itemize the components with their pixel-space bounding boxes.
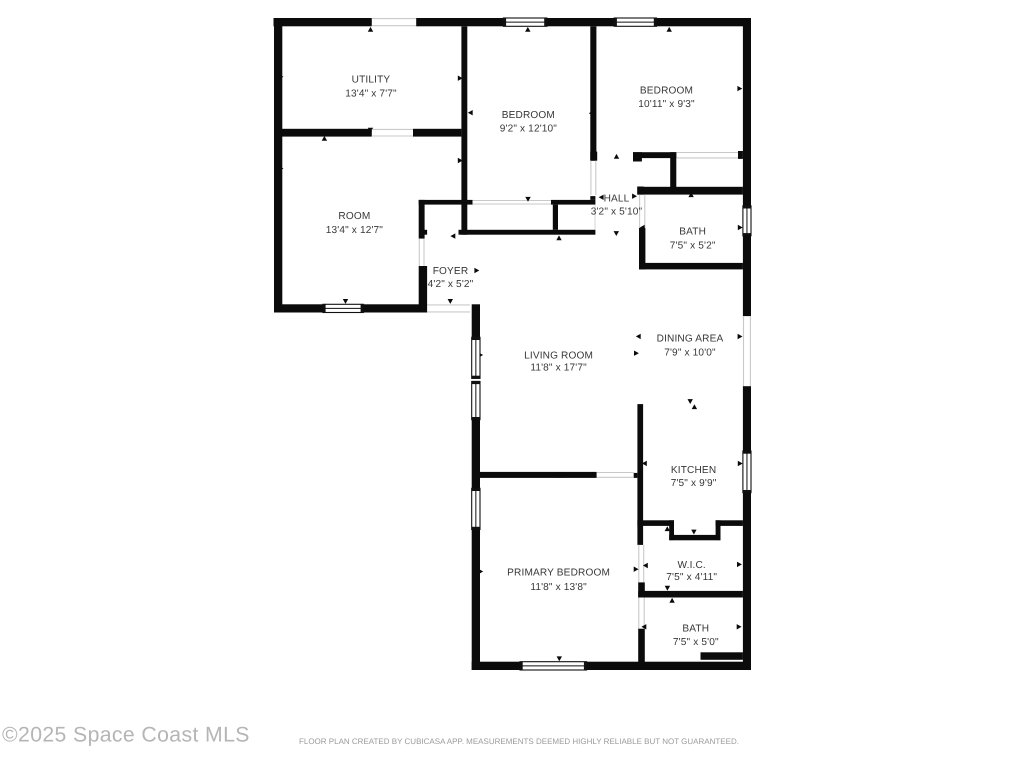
svg-text:7'5" x 5'2": 7'5" x 5'2" [670,241,716,252]
svg-text:4'2" x 5'2": 4'2" x 5'2" [428,279,474,290]
svg-text:BEDROOM: BEDROOM [502,110,555,121]
svg-text:DINING AREA: DINING AREA [657,334,724,345]
svg-text:BEDROOM: BEDROOM [640,86,693,97]
svg-text:7'5" x 5'0": 7'5" x 5'0" [673,637,719,648]
svg-text:LIVING ROOM: LIVING ROOM [524,351,593,362]
svg-text:7'9" x 10'0": 7'9" x 10'0" [664,347,716,358]
svg-text:FOYER: FOYER [433,266,469,277]
svg-text:FLOOR PLAN CREATED BY CUBICASA: FLOOR PLAN CREATED BY CUBICASA APP. MEAS… [299,737,739,746]
svg-text:HALL: HALL [604,194,630,205]
svg-text:10'11" x 9'3": 10'11" x 9'3" [638,99,695,110]
svg-text:BATH: BATH [682,624,709,635]
svg-text:©2025 Space Coast MLS: ©2025 Space Coast MLS [2,724,250,747]
svg-text:BATH: BATH [679,227,706,238]
svg-text:W.I.C.: W.I.C. [678,560,706,571]
svg-text:9'2" x 12'10": 9'2" x 12'10" [500,124,558,135]
svg-text:ROOM: ROOM [338,211,370,222]
svg-text:11'8" x 17'7": 11'8" x 17'7" [530,363,587,374]
svg-text:3'2" x 5'10": 3'2" x 5'10" [591,207,643,218]
svg-text:13'4" x 12'7": 13'4" x 12'7" [326,225,384,236]
svg-text:KITCHEN: KITCHEN [671,465,716,476]
svg-text:11'8" x 13'8": 11'8" x 13'8" [530,582,587,593]
svg-text:7'5" x 4'11": 7'5" x 4'11" [666,572,717,583]
svg-text:13'4" x 7'7": 13'4" x 7'7" [345,89,397,100]
svg-text:UTILITY: UTILITY [352,75,391,86]
svg-text:7'5" x 9'9": 7'5" x 9'9" [671,478,717,489]
svg-text:PRIMARY BEDROOM: PRIMARY BEDROOM [507,568,610,579]
